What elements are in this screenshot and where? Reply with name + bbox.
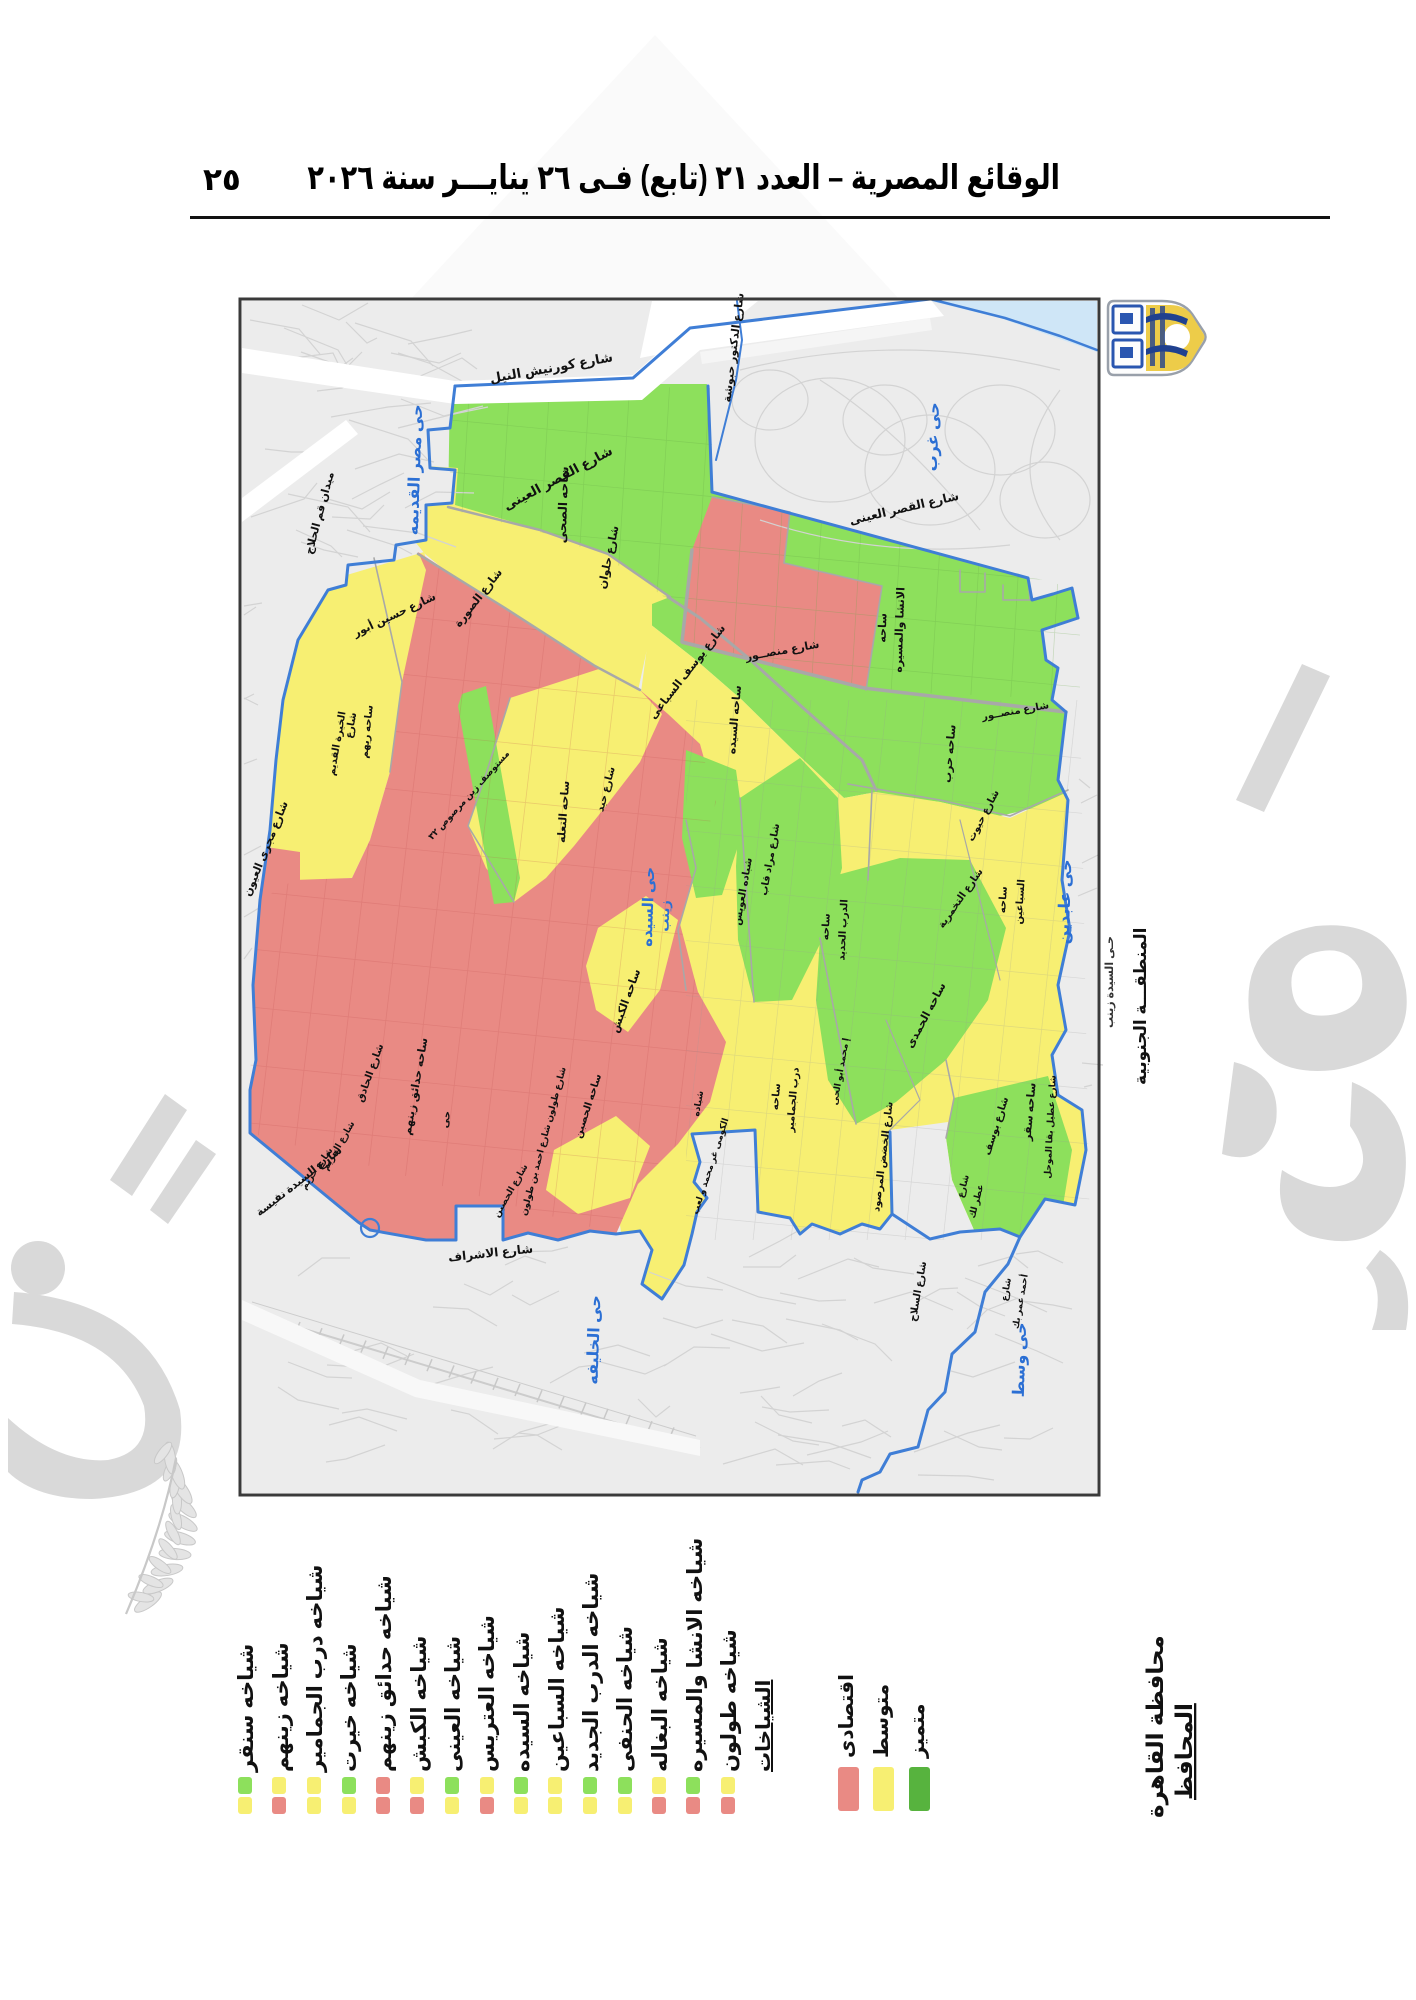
svg-text:ساحه: ساحه xyxy=(770,1083,783,1111)
svg-text:شياخه حدائق زينهم: شياخه حدائق زينهم xyxy=(373,1575,396,1772)
svg-text:شياخه الكبش: شياخه الكبش xyxy=(408,1636,431,1772)
svg-text:شياخه زينهم: شياخه زينهم xyxy=(270,1642,293,1772)
svg-text:ساحه: ساحه xyxy=(997,886,1010,914)
svg-text:شياخه درب الجمامير: شياخه درب الجمامير xyxy=(304,1565,327,1773)
svg-text:متميز: متميز xyxy=(907,1703,929,1759)
svg-text:محافظة القاهرة: محافظة القاهرة xyxy=(1142,1635,1169,1818)
svg-text:شياخه السيده: شياخه السيده xyxy=(511,1632,534,1772)
svg-text:حى السيده: حى السيده xyxy=(639,867,659,947)
svg-text:اقتصادى: اقتصادى xyxy=(836,1674,858,1758)
svg-text:المنطقـــة الجنوبية: المنطقـــة الجنوبية xyxy=(1131,928,1151,1086)
svg-text:شياخه العينى: شياخه العينى xyxy=(442,1636,465,1772)
svg-text:حى وسط: حى وسط xyxy=(1011,1322,1031,1398)
svg-text:حى الخليفه: حى الخليفه xyxy=(584,1295,604,1385)
svg-text:ساحه الصحى: ساحه الصحى xyxy=(555,466,572,543)
svg-text:شياخه الدرب الجديد: شياخه الدرب الجديد xyxy=(580,1573,603,1772)
svg-text:شياخه السباعين: شياخه السباعين xyxy=(546,1606,569,1772)
svg-text:حـى السيدة زينب: حـى السيدة زينب xyxy=(1104,936,1116,1028)
svg-text:شياخه العتريس: شياخه العتريس xyxy=(476,1615,499,1772)
svg-text:الشياخات: الشياخات xyxy=(753,1680,775,1772)
svg-text:ساحه: ساحه xyxy=(876,613,889,643)
svg-text:شياخه طولون: شياخه طولون xyxy=(718,1629,741,1772)
svg-text:متوسط: متوسط xyxy=(871,1684,893,1758)
svg-text:شياخه سنقر: شياخه سنقر xyxy=(235,1644,258,1773)
svg-text:شياخه الانشا والمسيره: شياخه الانشا والمسيره xyxy=(684,1538,707,1772)
svg-text:شياخه خيرت: شياخه خيرت xyxy=(338,1643,361,1772)
svg-text:المحافظ: المحافظ xyxy=(1171,1703,1197,1800)
svg-text:حى عابدين: حى عابدين xyxy=(1056,859,1076,944)
svg-text:ساحه: ساحه xyxy=(820,913,832,941)
svg-text:زينب: زينب xyxy=(656,900,672,932)
svg-text:حى غرب: حى غرب xyxy=(924,402,943,472)
svg-text:شياخه الحنفى: شياخه الحنفى xyxy=(614,1626,637,1772)
svg-text:شياخه البغاله: شياخه البغاله xyxy=(649,1637,672,1772)
